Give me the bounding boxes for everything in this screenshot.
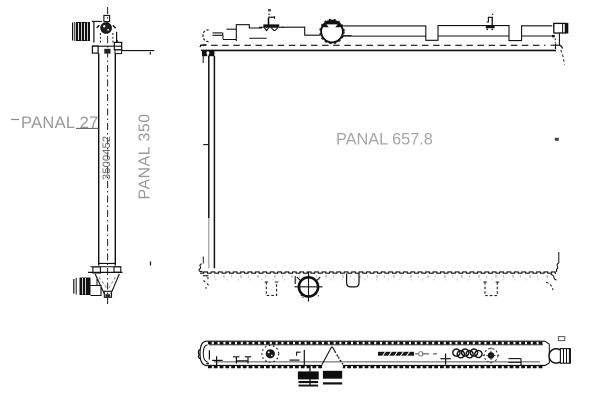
- svg-text:PANAL 350: PANAL 350: [137, 113, 154, 199]
- svg-text:PANAL 657.8: PANAL 657.8: [336, 131, 433, 149]
- svg-text:PANAL 27: PANAL 27: [21, 114, 99, 132]
- svg-text:3500452: 3500452: [101, 136, 113, 180]
